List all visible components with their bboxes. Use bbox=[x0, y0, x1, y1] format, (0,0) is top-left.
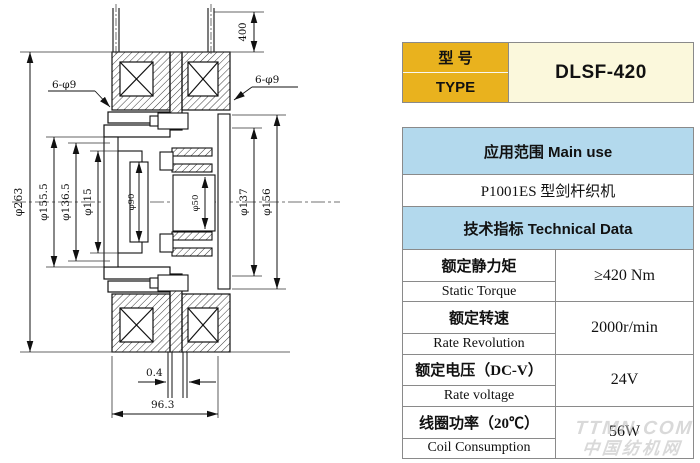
dim-label-d50: φ50 bbox=[191, 195, 201, 212]
lead-wires-bottom bbox=[168, 352, 187, 398]
technical-drawing: 400 6-φ9 6-φ9 φ263 φ155.5 bbox=[0, 0, 395, 463]
row-label: 线圈功率（20℃） Coil Consumption bbox=[403, 407, 556, 458]
dimension-d155: φ155.5 bbox=[38, 137, 54, 267]
type-label-en: TYPE bbox=[403, 73, 508, 102]
type-label-cn: 型 号 bbox=[403, 43, 508, 73]
type-header-cell: 型 号 TYPE bbox=[403, 43, 509, 102]
dim-label-400: 400 bbox=[238, 22, 249, 41]
row-label-en: Coil Consumption bbox=[403, 439, 555, 458]
dim-label-d90: φ90 bbox=[127, 194, 137, 211]
dimension-d136: φ136.5 bbox=[60, 143, 76, 261]
dim-label-gap: 0.4 bbox=[146, 367, 163, 379]
technical-data-header: 技术指标 Technical Data bbox=[403, 207, 693, 250]
coil-winding-bottom-right bbox=[188, 308, 218, 342]
table-row-rate-voltage: 额定电压（DC-V） Rate voltage 24V bbox=[403, 355, 693, 407]
table-row-static-torque: 额定静力矩 Static Torque ≥420 Nm bbox=[403, 250, 693, 302]
row-value: 56W bbox=[556, 407, 693, 458]
row-label-en: Rate voltage bbox=[403, 386, 555, 405]
row-value: 24V bbox=[556, 355, 693, 406]
main-use-value: P1001ES 型剑杆织机 bbox=[403, 175, 693, 207]
row-label-cn: 额定电压（DC-V） bbox=[403, 355, 555, 387]
row-label-en: Rate Revolution bbox=[403, 334, 555, 353]
table-row-coil-consumption: 线圈功率（20℃） Coil Consumption 56W bbox=[403, 407, 693, 458]
type-table: 型 号 TYPE DLSF-420 bbox=[402, 42, 694, 103]
table-row-rate-revolution: 额定转速 Rate Revolution 2000r/min bbox=[403, 302, 693, 354]
coil-winding-top-left bbox=[120, 62, 153, 96]
row-value: ≥420 Nm bbox=[556, 250, 693, 301]
row-label-cn: 额定静力矩 bbox=[403, 250, 555, 282]
dim-label-d136: φ136.5 bbox=[60, 183, 72, 220]
dimension-d263: φ263 bbox=[12, 52, 30, 352]
row-label: 额定静力矩 Static Torque bbox=[403, 250, 556, 301]
callout-holes-left: 6-φ9 bbox=[48, 79, 110, 107]
dimension-total-width: 96.3 bbox=[112, 399, 218, 414]
dimension-gap: 0.4 bbox=[138, 367, 216, 382]
spec-table: 应用范围 Main use P1001ES 型剑杆织机 技术指标 Technic… bbox=[402, 127, 694, 459]
dimension-d115: φ115 bbox=[82, 151, 98, 253]
dim-label-d263: φ263 bbox=[12, 188, 25, 217]
row-label-cn: 线圈功率（20℃） bbox=[403, 407, 555, 439]
page: 400 6-φ9 6-φ9 φ263 φ155.5 bbox=[0, 0, 700, 463]
model-number: DLSF-420 bbox=[509, 43, 693, 102]
dim-label-6phi9-right: 6-φ9 bbox=[255, 74, 279, 86]
coil-winding-bottom-left bbox=[120, 308, 153, 342]
dim-label-width: 96.3 bbox=[151, 399, 174, 411]
dim-label-d137: φ137 bbox=[238, 188, 250, 215]
dim-label-d156: φ156 bbox=[261, 188, 273, 216]
row-value: 2000r/min bbox=[556, 302, 693, 353]
clutch-cross-section: 400 6-φ9 6-φ9 φ263 φ155.5 bbox=[0, 0, 395, 463]
row-label: 额定电压（DC-V） Rate voltage bbox=[403, 355, 556, 406]
dim-label-d115: φ115 bbox=[82, 188, 94, 215]
dimension-lead-length: 400 bbox=[238, 12, 254, 52]
dim-label-6phi9-left: 6-φ9 bbox=[52, 79, 76, 91]
row-label-en: Static Torque bbox=[403, 282, 555, 301]
main-use-header: 应用范围 Main use bbox=[403, 128, 693, 175]
dim-label-d155: φ155.5 bbox=[38, 183, 50, 220]
lead-wires-top bbox=[113, 4, 214, 56]
coil-winding-top-right bbox=[188, 62, 218, 96]
row-label: 额定转速 Rate Revolution bbox=[403, 302, 556, 353]
row-label-cn: 额定转速 bbox=[403, 302, 555, 334]
callout-holes-right: 6-φ9 bbox=[234, 74, 298, 100]
